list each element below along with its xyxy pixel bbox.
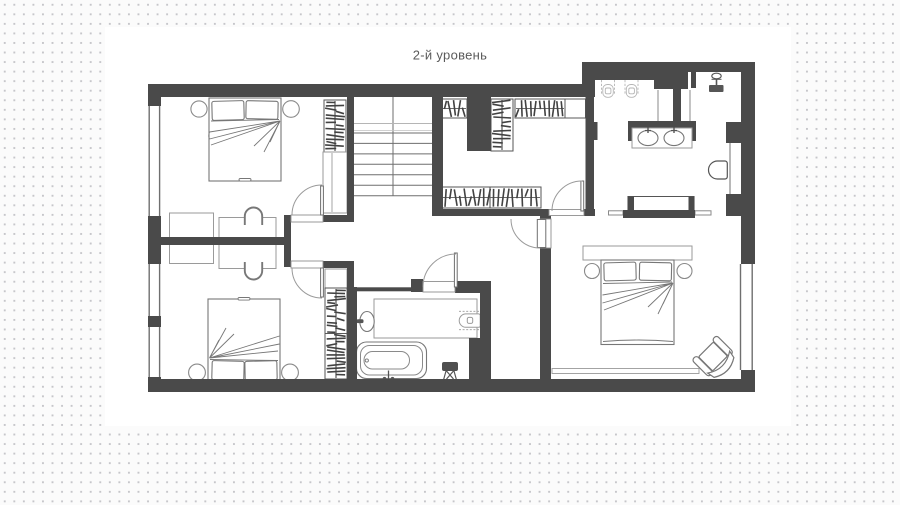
svg-text:2-й уровень: 2-й уровень <box>413 48 488 63</box>
